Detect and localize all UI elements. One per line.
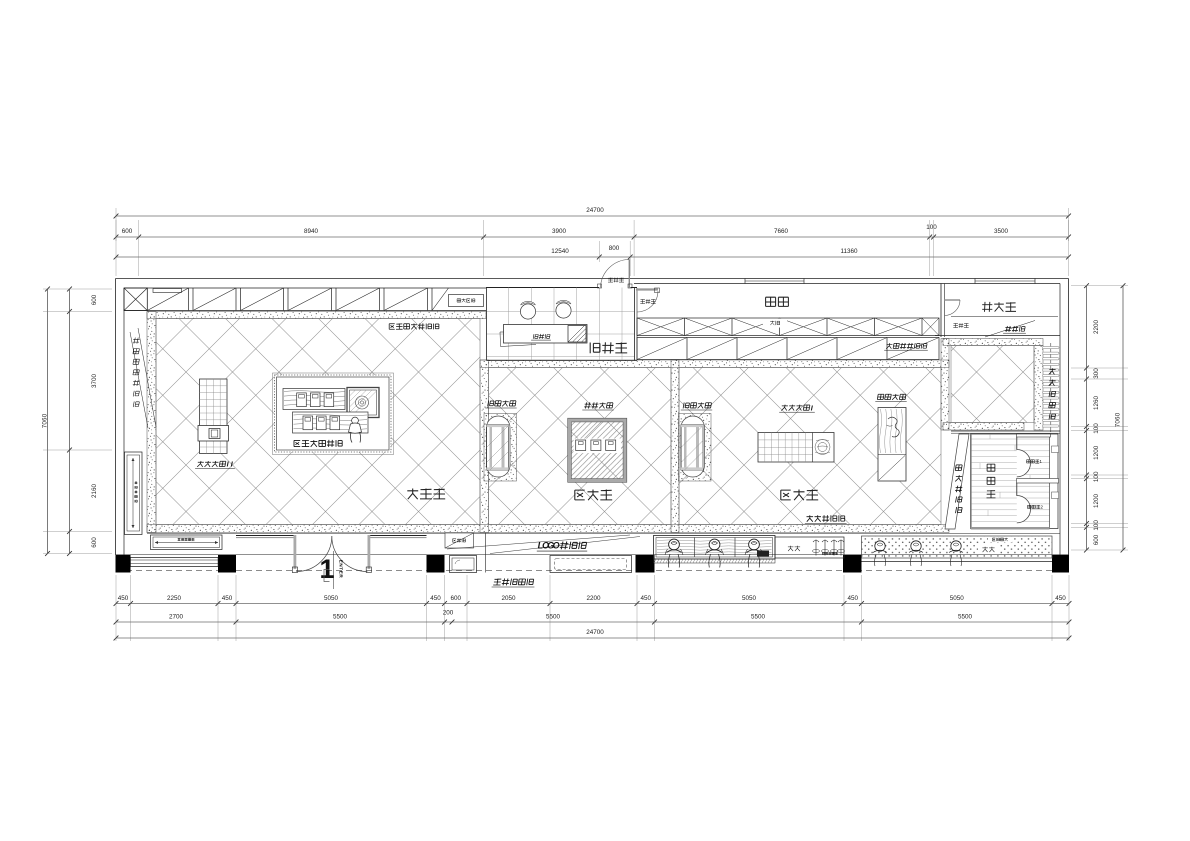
svg-text:600: 600 bbox=[450, 595, 461, 602]
svg-text:0: 0 bbox=[41, 413, 48, 417]
svg-text:24700: 24700 bbox=[586, 629, 604, 636]
svg-text:450: 450 bbox=[1055, 595, 1066, 602]
svg-text:7660: 7660 bbox=[774, 228, 789, 235]
svg-text:2200: 2200 bbox=[586, 595, 601, 602]
svg-text:ENTER: ENTER bbox=[339, 560, 344, 579]
svg-text:600: 600 bbox=[1093, 534, 1100, 545]
svg-text:8940: 8940 bbox=[304, 228, 319, 235]
svg-text:5500: 5500 bbox=[546, 614, 561, 621]
svg-text:450: 450 bbox=[640, 595, 651, 602]
svg-text:1: 1 bbox=[319, 554, 334, 584]
svg-text:5500: 5500 bbox=[333, 614, 348, 621]
svg-text:450: 450 bbox=[430, 595, 441, 602]
svg-text:24700: 24700 bbox=[586, 207, 604, 214]
svg-text:3700: 3700 bbox=[91, 374, 98, 389]
svg-text:5050: 5050 bbox=[950, 595, 965, 602]
svg-text:2050: 2050 bbox=[501, 595, 516, 602]
svg-text:300: 300 bbox=[1093, 368, 1100, 379]
svg-text:12540: 12540 bbox=[551, 248, 569, 255]
svg-text:1200: 1200 bbox=[1093, 445, 1100, 460]
svg-text:450: 450 bbox=[118, 595, 129, 602]
svg-text:5500: 5500 bbox=[958, 614, 973, 621]
svg-text:2700: 2700 bbox=[169, 614, 184, 621]
svg-text:1200: 1200 bbox=[1093, 494, 1100, 509]
svg-text:600: 600 bbox=[122, 228, 133, 235]
svg-text:800: 800 bbox=[609, 245, 620, 252]
svg-text:3900: 3900 bbox=[552, 228, 567, 235]
svg-text:O: O bbox=[553, 541, 560, 551]
svg-text:600: 600 bbox=[91, 537, 98, 548]
svg-text:450: 450 bbox=[847, 595, 858, 602]
svg-text:5500: 5500 bbox=[751, 614, 766, 621]
svg-text:600: 600 bbox=[91, 294, 98, 305]
svg-text:0: 0 bbox=[1114, 412, 1121, 416]
svg-text:1260: 1260 bbox=[1093, 396, 1100, 411]
svg-text:2250: 2250 bbox=[167, 595, 182, 602]
svg-text:5050: 5050 bbox=[742, 595, 757, 602]
svg-text:450: 450 bbox=[222, 595, 233, 602]
svg-text:100: 100 bbox=[1093, 471, 1100, 482]
svg-text:100: 100 bbox=[1093, 520, 1100, 531]
svg-text:2200: 2200 bbox=[1093, 320, 1100, 335]
svg-text:100: 100 bbox=[1093, 423, 1100, 434]
svg-text:11360: 11360 bbox=[840, 248, 858, 255]
svg-text:100: 100 bbox=[926, 224, 937, 231]
svg-text:2160: 2160 bbox=[91, 484, 98, 499]
svg-text:3500: 3500 bbox=[994, 228, 1009, 235]
svg-text:5050: 5050 bbox=[324, 595, 339, 602]
